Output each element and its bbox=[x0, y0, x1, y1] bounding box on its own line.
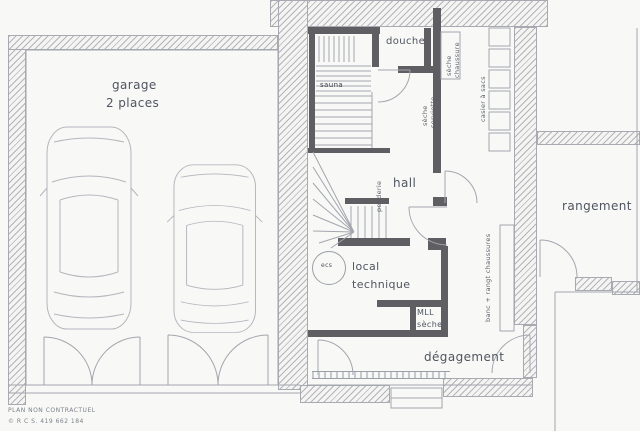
car-top-view-1 bbox=[40, 127, 138, 329]
penderie-label: penderie bbox=[375, 181, 383, 212]
local-technique-label-2: technique bbox=[352, 278, 410, 291]
seche-chaussure-label-1: sèche bbox=[445, 55, 453, 76]
seche-serviette-label-2: serviette bbox=[429, 96, 437, 128]
linework-layer bbox=[0, 0, 640, 431]
bench-outline bbox=[500, 225, 514, 331]
interior-doors bbox=[318, 70, 577, 375]
ecs-label: ecs bbox=[321, 262, 332, 269]
seche-chaussure-label-2: chaussure bbox=[453, 42, 461, 78]
casier-grid bbox=[489, 28, 510, 151]
local-technique-label-1: local bbox=[352, 260, 380, 273]
garage-label: garage bbox=[112, 78, 157, 92]
entry-step bbox=[391, 388, 442, 408]
sauna-label: sauna bbox=[320, 81, 343, 89]
casier-a-sacs-label: casier à sacs bbox=[479, 76, 487, 122]
laundry-label-1: MLL bbox=[417, 308, 434, 317]
banc-rangt-chaussures-label: banc + rangt chaussures bbox=[484, 234, 492, 322]
plan-registration: © R C S. 419 662 184 bbox=[8, 418, 84, 425]
garage-doors bbox=[44, 335, 268, 385]
laundry-label-2: sèche bbox=[417, 320, 442, 329]
rangement-label: rangement bbox=[562, 199, 632, 213]
garage-capacity-label: 2 places bbox=[106, 96, 159, 110]
staircase bbox=[313, 92, 386, 248]
douche-label: douche bbox=[386, 36, 425, 47]
degagement-label: dégagement bbox=[424, 350, 504, 364]
plan-disclaimer: PLAN NON CONTRACTUEL bbox=[8, 407, 96, 414]
window-band bbox=[312, 371, 450, 379]
car-top-view-2 bbox=[167, 165, 262, 333]
seche-serviette-label-1: sèche bbox=[421, 105, 429, 126]
floor-plan-page: garage 2 places sauna douche hall local … bbox=[0, 0, 640, 431]
hall-label: hall bbox=[393, 176, 416, 190]
